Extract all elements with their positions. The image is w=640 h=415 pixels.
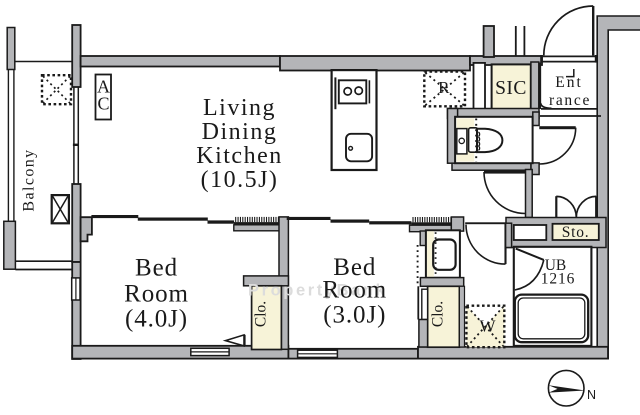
svg-text:(3.0J): (3.0J): [323, 302, 386, 329]
svg-text:Dining: Dining: [202, 119, 278, 145]
svg-text:Living: Living: [203, 95, 276, 121]
svg-text:N: N: [587, 388, 596, 402]
svg-text:SIC: SIC: [495, 78, 527, 99]
svg-text:Balcony: Balcony: [21, 148, 38, 211]
svg-text:Sto.: Sto.: [562, 224, 590, 241]
svg-text:Bed: Bed: [135, 255, 178, 282]
svg-text:(10.5J): (10.5J): [201, 167, 279, 193]
svg-text:Ent: Ent: [555, 74, 583, 91]
svg-text:Room: Room: [124, 281, 189, 308]
svg-text:R: R: [438, 78, 450, 97]
svg-text:W: W: [479, 317, 496, 336]
svg-text:C: C: [97, 94, 109, 114]
svg-text:Kitchen: Kitchen: [196, 143, 282, 169]
svg-text:1216: 1216: [541, 271, 576, 288]
svg-text:Room: Room: [322, 277, 387, 304]
svg-text:rance: rance: [549, 92, 591, 109]
svg-text:(4.0J): (4.0J): [125, 306, 188, 333]
svg-text:Clo.: Clo.: [253, 301, 270, 327]
svg-text:Clo.: Clo.: [430, 301, 447, 327]
